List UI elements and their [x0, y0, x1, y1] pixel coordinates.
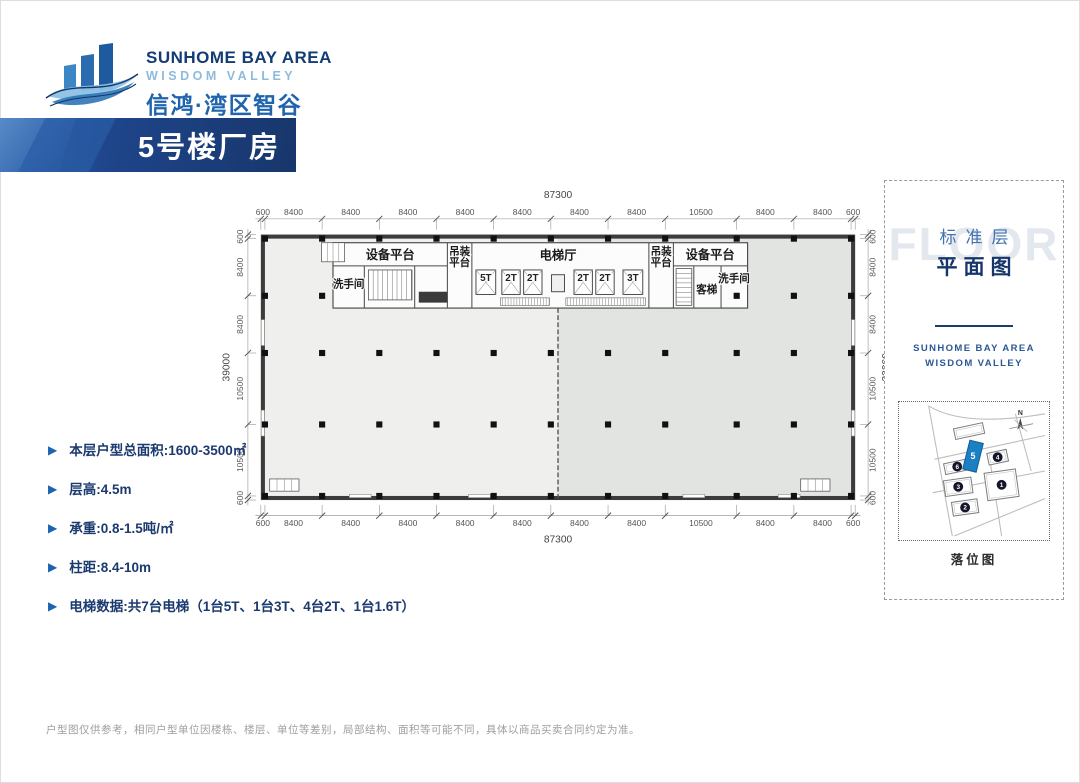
- svg-text:8400: 8400: [813, 207, 832, 217]
- svg-text:10500: 10500: [689, 207, 713, 217]
- svg-text:8400: 8400: [570, 518, 589, 528]
- svg-text:87300: 87300: [544, 190, 573, 201]
- svg-text:吊装: 吊装: [449, 245, 471, 258]
- spec-item: ▶本层户型总面积:1600-3500㎡: [48, 442, 468, 459]
- svg-text:8400: 8400: [398, 207, 417, 217]
- panel-title-top: 标准层: [885, 223, 1063, 248]
- svg-text:8400: 8400: [627, 518, 646, 528]
- svg-text:2T: 2T: [505, 273, 517, 284]
- logo-text: SUNHOME BAY AREA WISDOM VALLEY 信鸿·湾区智谷: [146, 48, 332, 120]
- panel-brand-line1: SUNHOME BAY AREA: [885, 341, 1063, 356]
- svg-text:600: 600: [846, 207, 860, 217]
- building-banner: 5号楼厂房: [0, 118, 296, 172]
- svg-text:N: N: [1018, 410, 1023, 417]
- side-panel: FLOOR 标准层 平面图 SUNHOME BAY AREA WISDOM VA…: [884, 180, 1064, 600]
- svg-text:8400: 8400: [513, 207, 532, 217]
- svg-text:2T: 2T: [527, 273, 539, 284]
- logo-name-cn: 信鸿·湾区智谷: [146, 86, 332, 120]
- svg-text:10500: 10500: [235, 377, 245, 401]
- svg-text:8400: 8400: [756, 518, 775, 528]
- svg-text:10500: 10500: [868, 377, 878, 401]
- svg-text:电梯厅: 电梯厅: [540, 248, 577, 263]
- panel-brand-line2: WISDOM VALLEY: [885, 356, 1063, 371]
- svg-text:洗手间: 洗手间: [333, 278, 365, 291]
- svg-text:39000: 39000: [222, 353, 233, 382]
- triangle-bullet-icon: ▶: [48, 481, 57, 498]
- map-building: [953, 423, 984, 440]
- svg-text:8400: 8400: [513, 518, 532, 528]
- spec-text: 柱距:8.4-10m: [69, 559, 151, 576]
- spec-item: ▶承重:0.8-1.5吨/㎡: [48, 520, 468, 537]
- site-map-svg: 643125N: [899, 402, 1049, 540]
- svg-text:8400: 8400: [868, 315, 878, 334]
- svg-text:2T: 2T: [577, 273, 589, 284]
- svg-text:87300: 87300: [544, 534, 573, 545]
- spec-text: 本层户型总面积:1600-3500㎡: [69, 442, 246, 459]
- svg-text:平台: 平台: [449, 256, 471, 269]
- triangle-bullet-icon: ▶: [48, 442, 57, 459]
- svg-text:平台: 平台: [651, 256, 673, 269]
- svg-text:6: 6: [955, 464, 959, 471]
- svg-text:600: 600: [256, 207, 270, 217]
- svg-text:8400: 8400: [570, 207, 589, 217]
- panel-brand: SUNHOME BAY AREA WISDOM VALLEY: [885, 341, 1063, 371]
- building-title: 5号楼厂房: [138, 124, 280, 166]
- triangle-bullet-icon: ▶: [48, 598, 57, 615]
- disclaimer: 户型图仅供参考，相同户型单位因楼栋、楼层、单位等差别，局部结构、面积等可能不同，…: [46, 722, 640, 737]
- site-map: 643125N: [898, 401, 1050, 541]
- brochure-page: SUNHOME BAY AREA WISDOM VALLEY 信鸿·湾区智谷 5…: [0, 0, 1080, 783]
- svg-text:8400: 8400: [284, 207, 303, 217]
- svg-text:3: 3: [956, 484, 960, 491]
- svg-text:8400: 8400: [235, 258, 245, 277]
- panel-title: 标准层 平面图: [885, 223, 1063, 281]
- svg-text:8400: 8400: [813, 518, 832, 528]
- svg-text:600: 600: [235, 229, 245, 243]
- svg-text:2: 2: [963, 505, 967, 512]
- svg-text:10500: 10500: [689, 518, 713, 528]
- svg-text:600: 600: [846, 518, 860, 528]
- spec-text: 层高:4.5m: [69, 481, 131, 498]
- svg-text:2T: 2T: [599, 273, 611, 284]
- svg-text:设备平台: 设备平台: [366, 247, 415, 262]
- panel-divider: [935, 325, 1013, 327]
- svg-text:8400: 8400: [341, 207, 360, 217]
- compass-icon: N: [1009, 410, 1033, 432]
- svg-text:8400: 8400: [235, 315, 245, 334]
- svg-text:5T: 5T: [480, 273, 492, 284]
- logo-name-sub: WISDOM VALLEY: [146, 69, 332, 83]
- svg-text:4: 4: [996, 454, 1000, 461]
- svg-text:洗手间: 洗手间: [718, 272, 750, 285]
- svg-text:吊装: 吊装: [651, 245, 673, 258]
- svg-text:5: 5: [971, 451, 976, 461]
- svg-text:10500: 10500: [868, 448, 878, 472]
- logo-bars-wave-icon: [44, 36, 140, 112]
- svg-text:8400: 8400: [456, 207, 475, 217]
- svg-text:客梯: 客梯: [695, 283, 718, 296]
- spec-text: 承重:0.8-1.5吨/㎡: [69, 520, 173, 537]
- svg-text:8400: 8400: [627, 207, 646, 217]
- panel-head: FLOOR 标准层 平面图: [885, 181, 1063, 311]
- spec-list: ▶本层户型总面积:1600-3500㎡▶层高:4.5m▶承重:0.8-1.5吨/…: [48, 442, 468, 637]
- spec-item: ▶柱距:8.4-10m: [48, 559, 468, 576]
- logo: SUNHOME BAY AREA WISDOM VALLEY 信鸿·湾区智谷: [44, 36, 332, 120]
- svg-text:3T: 3T: [627, 273, 639, 284]
- svg-text:设备平台: 设备平台: [686, 247, 735, 262]
- spec-item: ▶电梯数据:共7台电梯（1台5T、1台3T、4台2T、1台1.6T）: [48, 598, 468, 615]
- svg-text:8400: 8400: [868, 258, 878, 277]
- triangle-bullet-icon: ▶: [48, 559, 57, 576]
- svg-text:1: 1: [1000, 482, 1004, 489]
- spec-item: ▶层高:4.5m: [48, 481, 468, 498]
- map-buildings: 64312: [943, 423, 1019, 516]
- svg-text:600: 600: [868, 491, 878, 505]
- spec-text: 电梯数据:共7台电梯（1台5T、1台3T、4台2T、1台1.6T）: [69, 598, 415, 615]
- panel-title-bottom: 平面图: [885, 251, 1063, 281]
- svg-text:8400: 8400: [756, 207, 775, 217]
- logo-name-en: SUNHOME BAY AREA: [146, 48, 332, 68]
- svg-text:600: 600: [868, 229, 878, 243]
- triangle-bullet-icon: ▶: [48, 520, 57, 537]
- site-map-caption: 落位图: [885, 549, 1063, 568]
